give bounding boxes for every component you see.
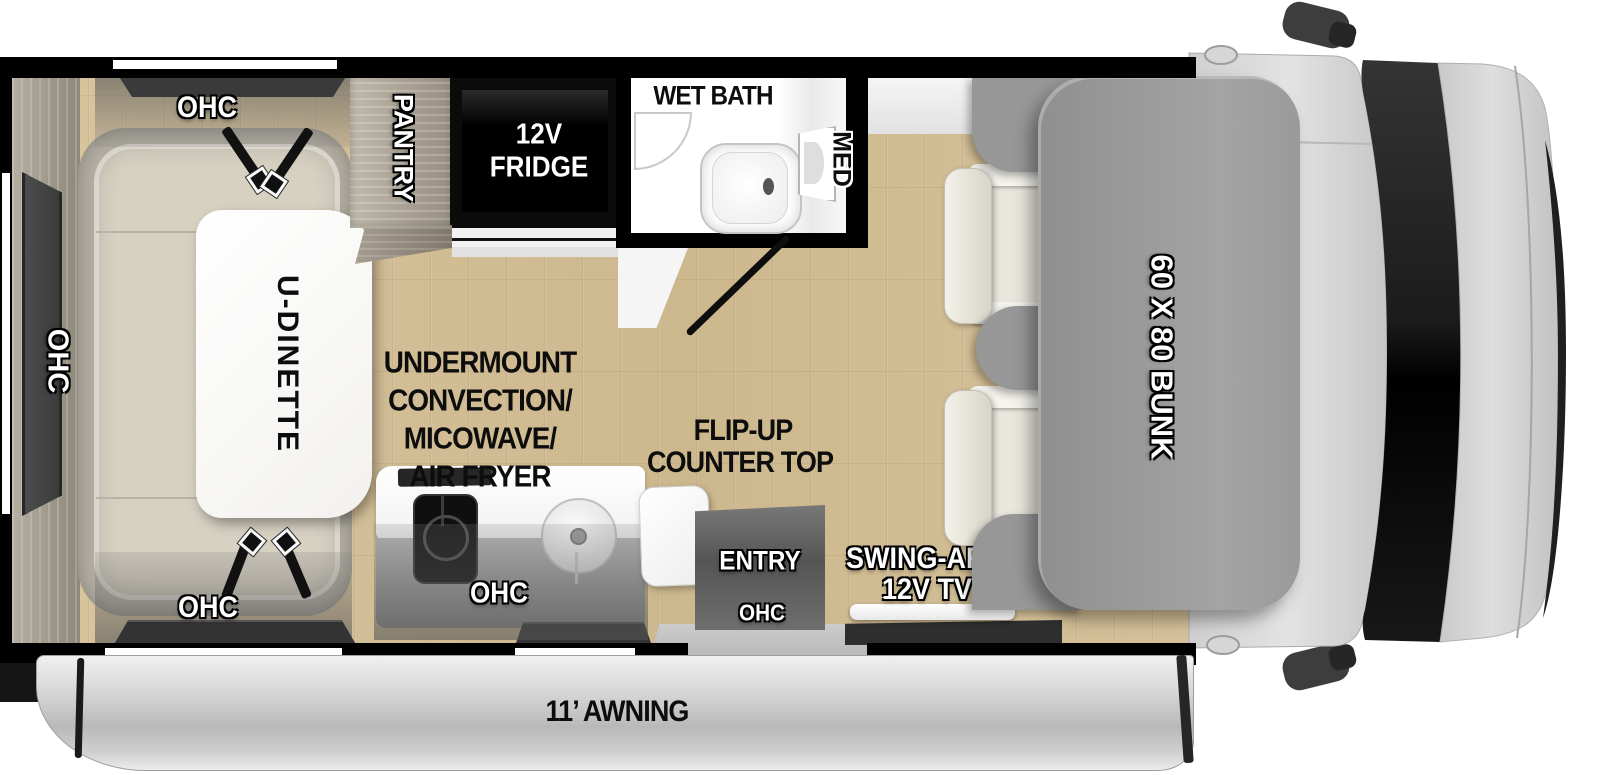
pantry-label: PANTRY: [390, 94, 417, 202]
fridge-label-line2: FRIDGE: [490, 154, 589, 183]
toilet-flush-button: [763, 178, 774, 195]
cab-mirror-bottom: [1279, 641, 1358, 694]
fridge-label-line1: 12V: [516, 121, 562, 150]
ohc-label-entry: OHC: [739, 602, 785, 625]
u-dinette-label: U-DINETTE: [272, 275, 302, 453]
awning-label: 11’ AWNING: [545, 697, 688, 727]
tv-label-line2: 12V TV: [882, 575, 972, 605]
undermount-label-line4: AIR FRYER: [409, 461, 550, 492]
med-label: MED: [829, 131, 854, 187]
cab-mirror-top: [1279, 0, 1358, 51]
bunk-label: 60 X 80 BUNK: [1147, 254, 1178, 459]
undermount-label-line3: MICOWAVE/: [404, 423, 557, 454]
window-top: [113, 60, 337, 69]
ohc-label-rear: OHC: [43, 329, 72, 393]
ohc-label-kitchen: OHC: [470, 580, 528, 609]
rv-floorplan: U-DINETTE OHC OHC OHC PANTRY 12V FRIDGE …: [0, 0, 1600, 775]
cab-seat-back: [944, 168, 992, 324]
window-left: [2, 173, 10, 514]
cushion-seam: [96, 497, 200, 499]
fridge-base: [452, 225, 622, 257]
undermount-label-line1: UNDERMOUNT: [384, 347, 576, 378]
ohc-label-dinette-bottom: OHC: [178, 593, 238, 623]
flip-up-label-line1: FLIP-UP: [694, 416, 793, 446]
undermount-label-line2: CONVECTION/: [388, 385, 572, 416]
med-cabinet-inner: [804, 142, 824, 184]
toilet-seat: [712, 152, 788, 224]
cab-seat-back: [944, 390, 992, 546]
cushion-seam: [96, 231, 200, 233]
flip-up-label-line2: COUNTER TOP: [647, 448, 833, 478]
ohc-label-dinette-top: OHC: [177, 93, 237, 123]
tv-backing: [845, 620, 1062, 645]
entry-label: ENTRY: [719, 548, 800, 575]
wet-bath-label: WET BATH: [653, 83, 772, 110]
fridge-base-seam: [452, 238, 622, 241]
